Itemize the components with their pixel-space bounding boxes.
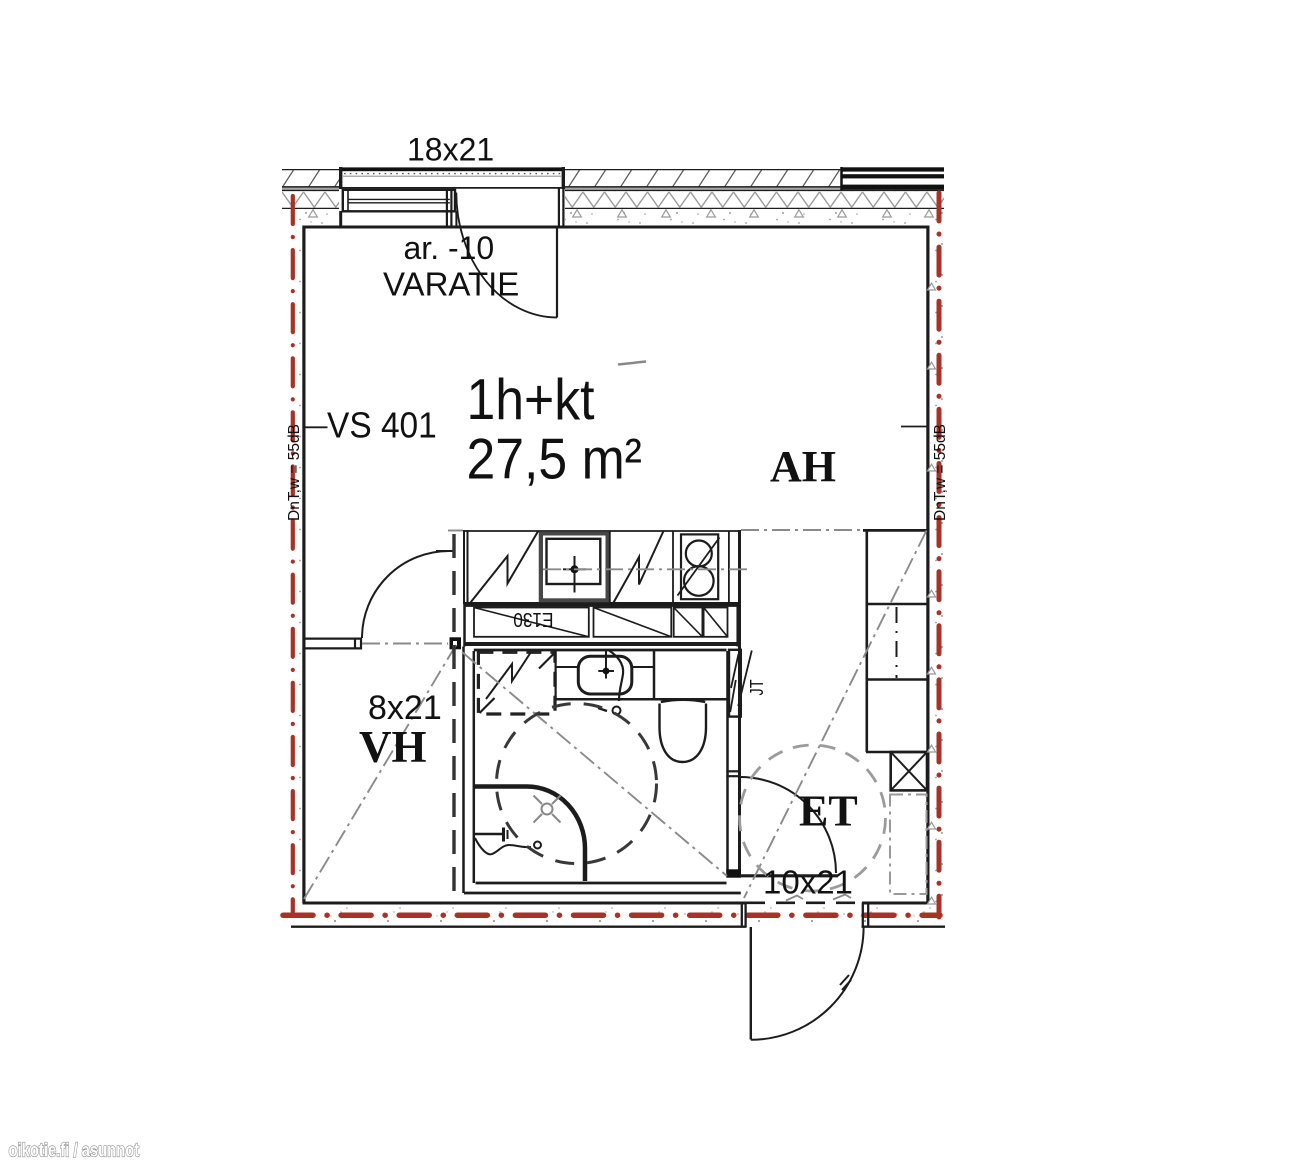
svg-text:VS 401: VS 401 — [327, 407, 437, 446]
svg-text:ET: ET — [799, 787, 858, 836]
svg-text:DnT,w = 55dB: DnT,w = 55dB — [286, 424, 303, 521]
svg-text:JT: JT — [746, 679, 767, 695]
svg-text:27,5 m²: 27,5 m² — [467, 426, 642, 491]
svg-text:AH: AH — [770, 442, 836, 491]
svg-text:1h+kt: 1h+kt — [467, 366, 595, 431]
svg-text:18x21: 18x21 — [407, 132, 494, 168]
svg-text:E130: E130 — [513, 608, 553, 631]
svg-text:VH: VH — [359, 722, 427, 772]
svg-text:VARATIE: VARATIE — [383, 266, 519, 303]
svg-text:DnT,w = 55dB: DnT,w = 55dB — [932, 424, 949, 521]
svg-text:oikotie.fi / asunnot: oikotie.fi / asunnot — [9, 1140, 140, 1161]
svg-text:10x21: 10x21 — [763, 864, 853, 901]
svg-text:ar. -10: ar. -10 — [404, 230, 495, 266]
